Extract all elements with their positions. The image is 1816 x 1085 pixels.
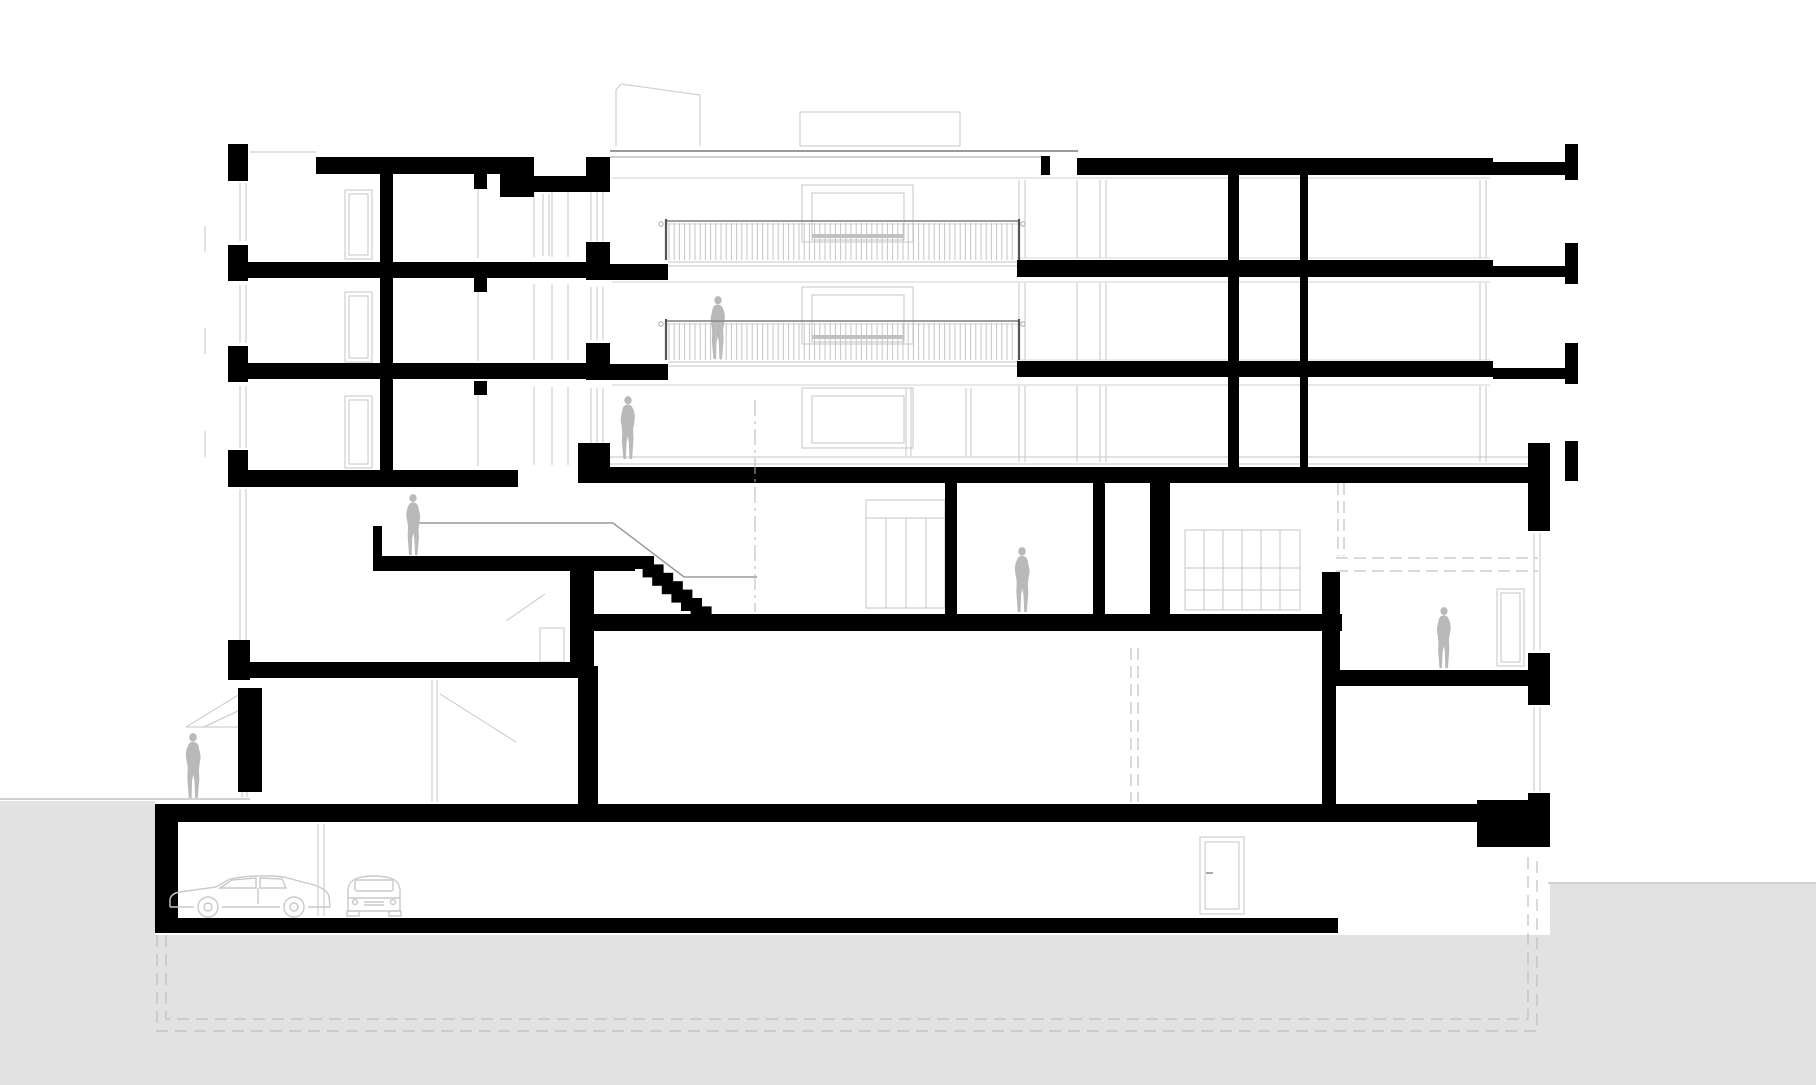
- roof-parapet-end: [1565, 144, 1578, 180]
- person-garden-room-silhouette: [1440, 607, 1447, 615]
- wall-lower-left: [578, 666, 598, 806]
- roof-slab-balcony: [1493, 162, 1565, 175]
- wall-under-garden-slab: [1322, 686, 1336, 804]
- person-level4-room-silhouette: [1018, 547, 1026, 555]
- mezzanine-landing-slab: [373, 556, 635, 571]
- party-pier-roof: [586, 157, 610, 190]
- garage-floor-slab: [155, 918, 1338, 933]
- facade-pier: [228, 245, 248, 281]
- floor2-slab-right: [1017, 361, 1493, 377]
- roof-parapet-step: [500, 157, 534, 197]
- roof-slab-right: [1077, 158, 1493, 175]
- person-on-landing-silhouette: [409, 494, 416, 502]
- railing-end-marker: [1021, 222, 1025, 226]
- railing-end-marker: [659, 322, 663, 326]
- level4-ceiling-slab: [594, 467, 1528, 483]
- floor3-slab-right: [1017, 260, 1493, 277]
- level4-wall-b: [1093, 483, 1105, 615]
- terrace-slab-lower: [586, 364, 668, 380]
- slab-stub: [474, 381, 487, 395]
- stair-step: [691, 606, 712, 619]
- section-drawing: [0, 0, 1816, 1085]
- floor2-slab-end: [1565, 343, 1578, 384]
- step-down-wall: [1322, 572, 1340, 672]
- lower-slab-left: [228, 662, 594, 678]
- garage-west-wall: [155, 804, 178, 933]
- interior-wall-left: [380, 174, 393, 474]
- floor1-slab-left: [240, 470, 518, 487]
- roof-upstand: [1041, 156, 1050, 175]
- person-outside-left-silhouette: [189, 733, 197, 741]
- facade-pier: [228, 346, 248, 382]
- exterior-wall-lower-left: [238, 688, 262, 792]
- floor1-slab-end: [1565, 441, 1578, 481]
- right-wing-wall-a: [1228, 174, 1239, 467]
- corner-pier-upper: [1528, 443, 1550, 531]
- facade-pier: [228, 144, 248, 181]
- railing-end-marker: [1021, 322, 1025, 326]
- drawing-canvas: [0, 0, 1816, 1085]
- railing-end-marker: [659, 222, 663, 226]
- garden-room-slab: [1322, 670, 1546, 686]
- level4-wall-a: [945, 483, 957, 615]
- roof-slab-left: [316, 157, 522, 174]
- landing-guard-wall: [373, 526, 382, 558]
- floor3-slab-end: [1565, 243, 1578, 284]
- corner-pier-mid: [1528, 653, 1550, 705]
- slab-stub: [474, 278, 487, 292]
- level4-wall-c: [1150, 483, 1170, 615]
- floor3-balcony-ext: [1493, 266, 1565, 277]
- garage-ceiling-slab: [155, 804, 1477, 822]
- floor3-slab-left: [248, 262, 592, 278]
- floor2-balcony-ext: [1493, 368, 1565, 379]
- terrace-slab-upper: [586, 264, 668, 280]
- floor2-slab-left: [248, 363, 592, 379]
- footing-step-block: [1477, 800, 1550, 847]
- person-ground-floor-middle-silhouette: [624, 396, 631, 404]
- right-wing-wall-b: [1300, 174, 1308, 467]
- slab-stub: [474, 174, 487, 189]
- person-on-balcony-silhouette: [714, 296, 721, 304]
